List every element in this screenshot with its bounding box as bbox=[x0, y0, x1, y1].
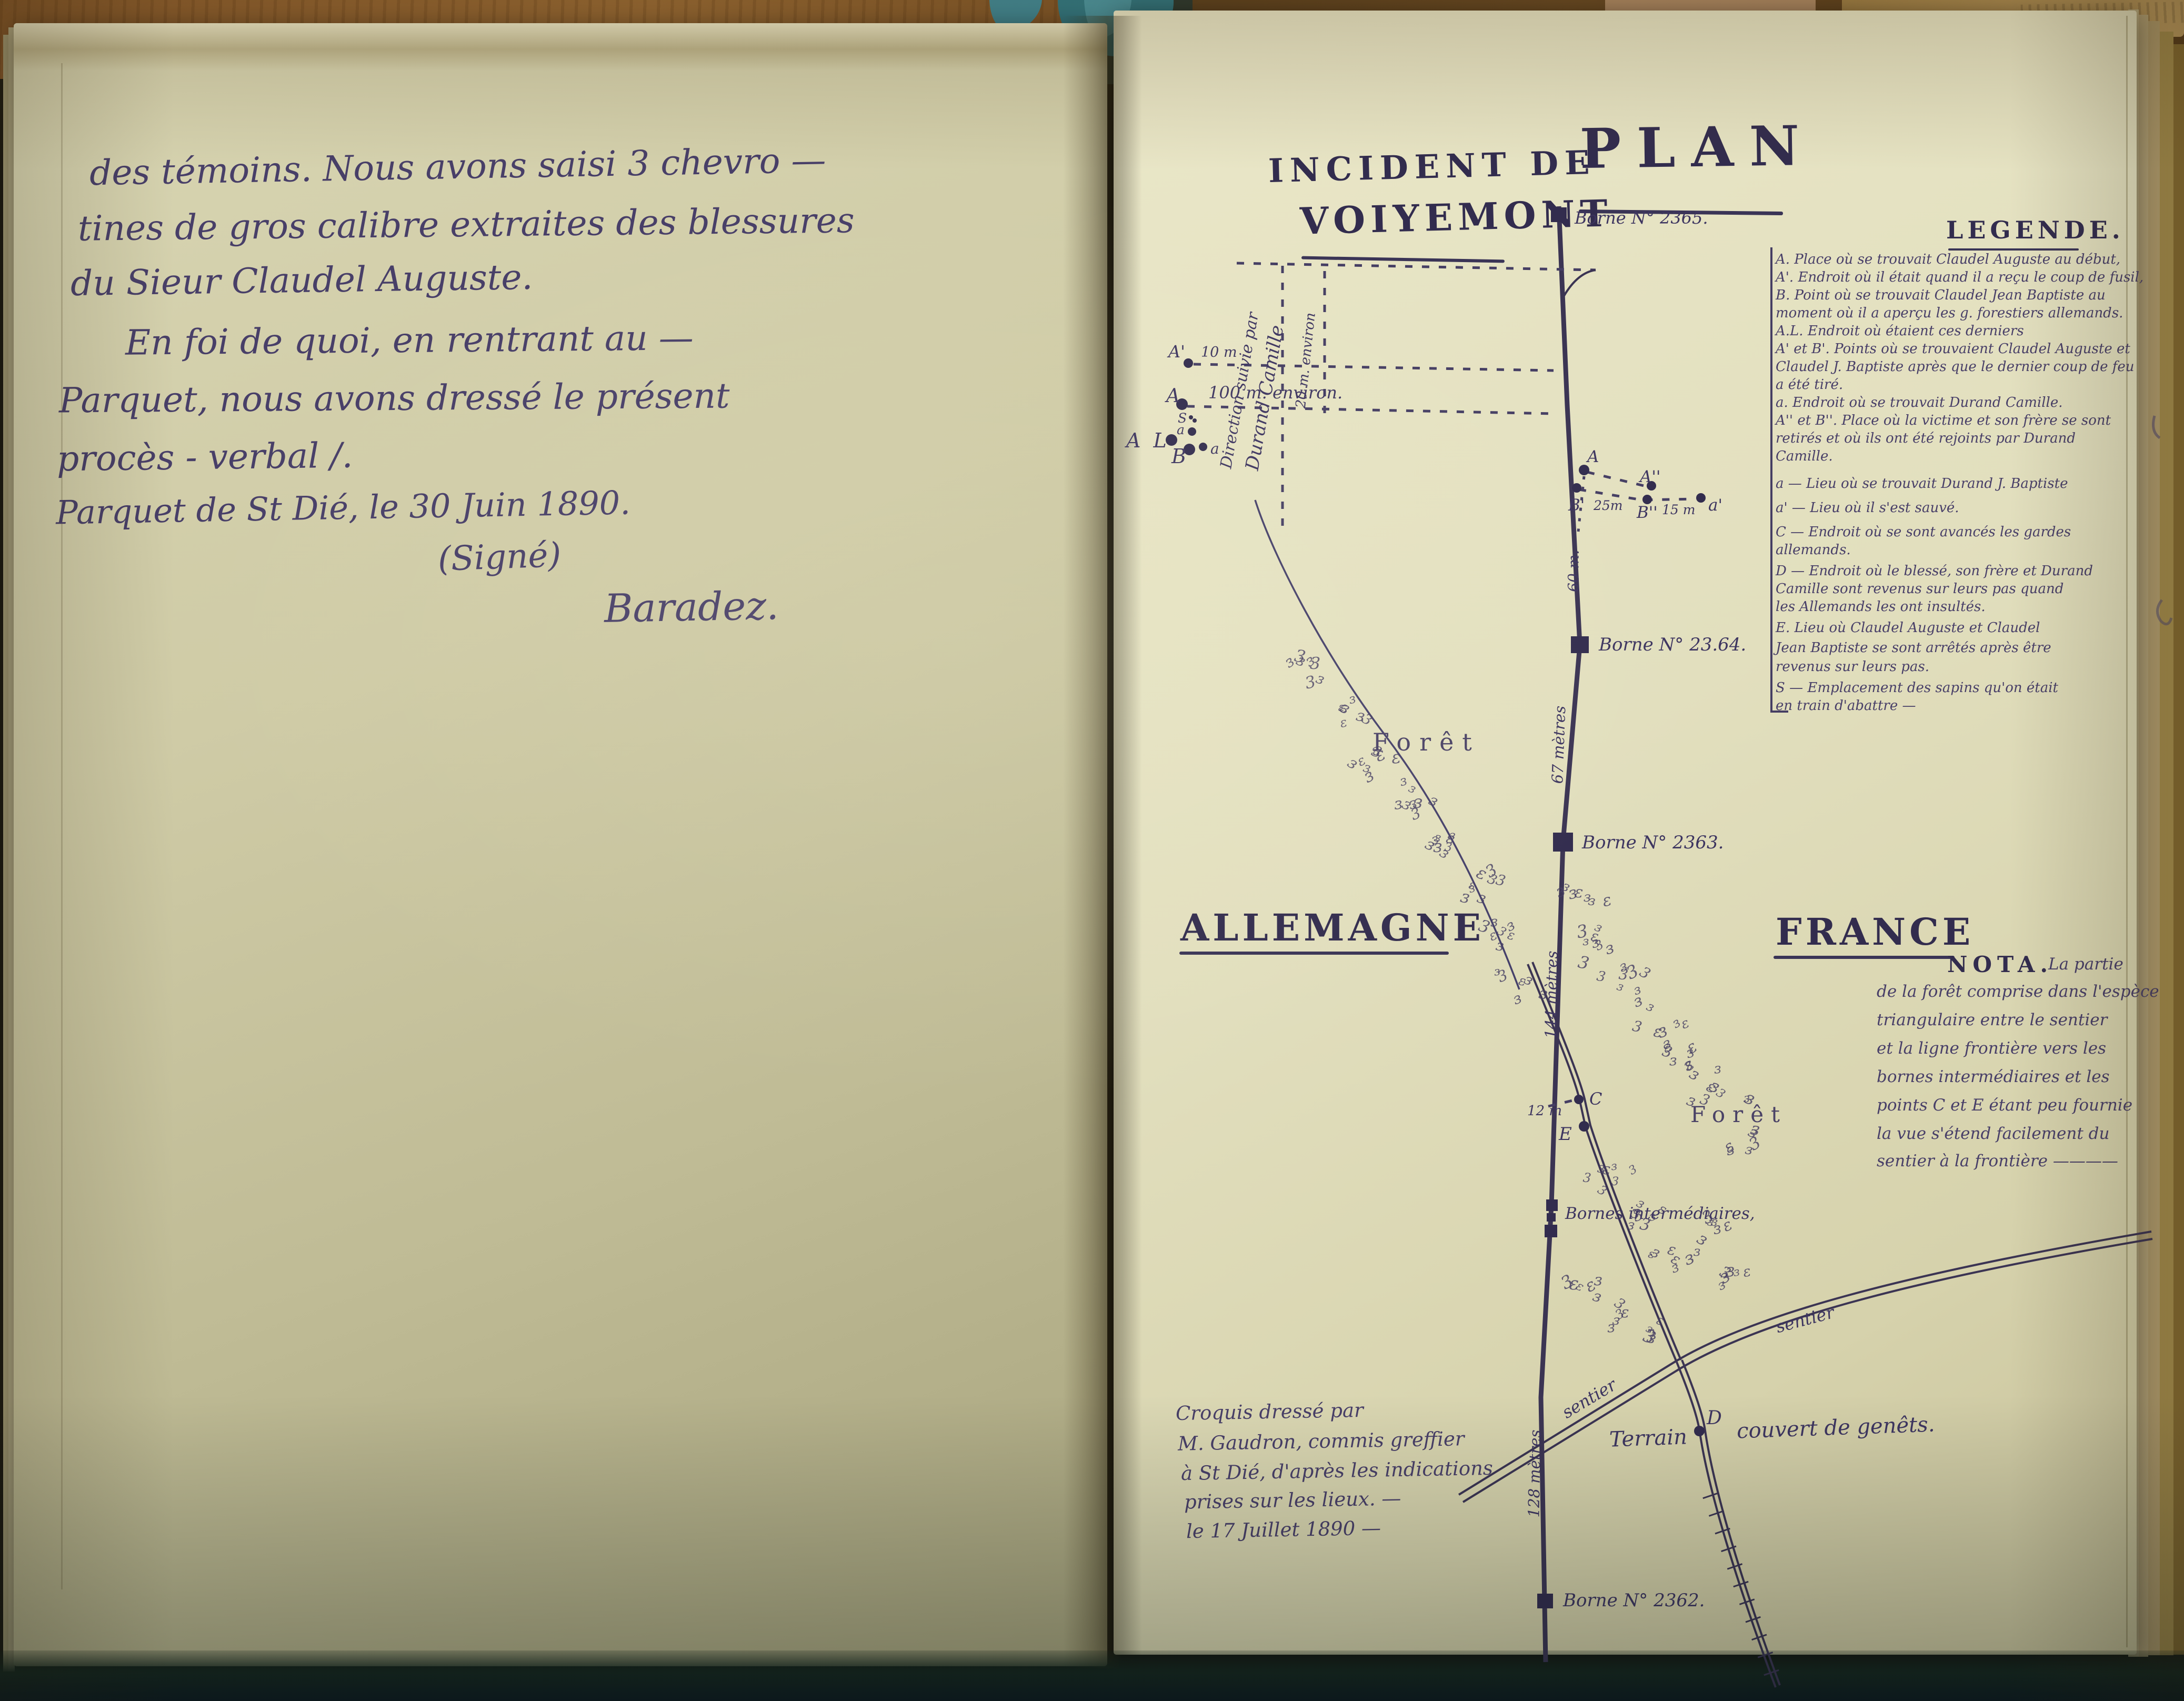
legend-line: A.L. Endroit où étaient ces derniers bbox=[1776, 324, 2024, 338]
point-label-a-dbl: A'' bbox=[1640, 468, 1660, 486]
legend-title: LEGENDE. bbox=[1946, 218, 2125, 242]
legend-line: A' et B'. Points où se trouvaient Claude… bbox=[1776, 342, 2130, 356]
france-underline bbox=[1774, 956, 1955, 959]
tree-scribble-icon: ɛ bbox=[1741, 1263, 1752, 1280]
archive-photo: 3ɜ3ɜɜ3ɜɛɛɜз3ɛɜ3ɛɜзɛɜɛɛɜɜз3ɜзɜɜɛɜɜ3зззɜ3з… bbox=[0, 0, 2184, 1701]
signature: Baradez. bbox=[604, 586, 779, 629]
nota-line: la vue s'étend facilement du bbox=[1877, 1125, 2110, 1143]
nota-line: triangulaire entre le sentier bbox=[1877, 1012, 2107, 1029]
caption-line: prises sur les lieux. — bbox=[1184, 1488, 1401, 1513]
legend-line: A'. Endroit où il était quand il a reçu … bbox=[1776, 271, 2143, 285]
legend-line: les Allemands les ont insultés. bbox=[1776, 600, 1986, 614]
country-label-allemagne: ALLEMAGNE bbox=[1180, 909, 1485, 946]
foret-label-1: Forêt bbox=[1372, 729, 1480, 755]
distance-60m: 60 m. bbox=[1566, 550, 1581, 592]
nota-line: bornes intermédiaires et les bbox=[1877, 1068, 2110, 1086]
terrain-label-part1: Terrain bbox=[1609, 1426, 1687, 1450]
legend-line: revenus sur leurs pas. bbox=[1776, 660, 1929, 674]
caption-line: M. Gaudron, commis greffier bbox=[1178, 1429, 1465, 1454]
distance-12m: 12 m bbox=[1527, 1104, 1562, 1118]
legend-line: moment où il a aperçu les g. forestiers … bbox=[1776, 306, 2123, 321]
point-label-a-line: A bbox=[1587, 448, 1599, 466]
tree-scribble-icon: з bbox=[1630, 991, 1645, 1012]
borne-label-2364: Borne N° 23.64. bbox=[1599, 636, 1746, 655]
point-label-a-escape: a' bbox=[1708, 497, 1722, 514]
legend-line: B. Point où se trouvait Claudel Jean Bap… bbox=[1776, 288, 2106, 303]
legend-line: A'' et B''. Place où la victime et son f… bbox=[1776, 414, 2111, 428]
manuscript-line: En foi de quoi, en rentrant au — bbox=[125, 319, 694, 361]
distance-128m: 128 mètres bbox=[1526, 1429, 1543, 1517]
tree-scribble-icon: ɜ bbox=[1615, 979, 1626, 994]
caption-line: le 17 Juillet 1890 — bbox=[1186, 1518, 1381, 1542]
borne-label-2365: Borne N° 2365. bbox=[1575, 209, 1708, 227]
legend-line: a été tiré. bbox=[1776, 378, 1843, 392]
point-label-c: C bbox=[1589, 1090, 1602, 1108]
legend-line: Camille sont revenus sur leurs pas quand bbox=[1776, 582, 2063, 596]
manuscript-line: procès - verbal /. bbox=[57, 437, 353, 477]
legend-line: Camille. bbox=[1776, 449, 1833, 464]
tree-scribble-icon: ɜ bbox=[1694, 1228, 1711, 1250]
tree-scribble-icon: з bbox=[1448, 827, 1457, 843]
legend-line: D — Endroit où le blessé, son frère et D… bbox=[1776, 564, 2093, 578]
tree-scribble-icon: ɜ bbox=[1393, 794, 1404, 814]
point-label-d: D bbox=[1707, 1408, 1722, 1428]
tree-scribble-icon: 3 bbox=[1595, 1182, 1609, 1199]
distance-67m: 67 mètres bbox=[1549, 705, 1568, 784]
legend-line: E. Lieu où Claudel Auguste et Claudel bbox=[1776, 621, 2040, 635]
nota-line: La partie bbox=[2048, 956, 2123, 973]
legend-line: en train d'abattre — bbox=[1776, 699, 1916, 713]
legend-line: C — Endroit où se sont avancés les garde… bbox=[1776, 525, 2071, 539]
subtitle-line2: VOIYEMONT bbox=[1299, 195, 1613, 240]
tree-scribble-icon: ɜ bbox=[1594, 1270, 1602, 1289]
point-label-b-prime: B' bbox=[1568, 497, 1585, 514]
distance-10m: 10 m bbox=[1201, 345, 1237, 360]
tree-scribble-icon: ɛ bbox=[1679, 1015, 1692, 1033]
legend-line: S — Emplacement des sapins qu'on était bbox=[1776, 681, 2058, 695]
manuscript-date-line: Parquet de St Dié, le 30 Juin 1890. bbox=[56, 485, 631, 529]
point-label-a-prime: A' bbox=[1168, 343, 1185, 361]
point-label-e: E bbox=[1559, 1125, 1572, 1144]
manuscript-signe: (Signé) bbox=[437, 538, 562, 577]
legend-line: Jean Baptiste se sont arrêtés après être bbox=[1776, 641, 2051, 655]
tree-scribble-icon: ɜ bbox=[1398, 773, 1409, 789]
legend-line: allemands. bbox=[1776, 543, 1851, 557]
legend-line: a — Lieu où se trouvait Durand J. Baptis… bbox=[1776, 477, 2068, 491]
point-label-b-dbl: B'' bbox=[1637, 504, 1658, 522]
tree-scribble-icon: ɛ bbox=[1574, 883, 1584, 902]
tree-scribble-icon: з bbox=[1602, 938, 1616, 958]
borne-label-2362: Borne N° 2362. bbox=[1563, 1592, 1705, 1610]
legend-line: a' — Lieu où il s'est sauvé. bbox=[1776, 501, 1959, 515]
tree-scribble-icon: 3 bbox=[1637, 963, 1654, 983]
distance-144m: 144 mètres bbox=[1542, 950, 1560, 1038]
country-label-france: FRANCE bbox=[1776, 914, 1974, 950]
legend-line: A. Place où se trouvait Claudel Auguste … bbox=[1776, 253, 2120, 267]
tree-scribble-icon: 3 bbox=[1576, 952, 1591, 974]
tree-scribble-icon: з bbox=[1744, 1141, 1754, 1158]
tree-scribble-icon: 3 bbox=[1582, 1170, 1592, 1186]
tree-scribble-icon: 3 bbox=[1575, 920, 1589, 942]
manuscript-line: Parquet, nous avons dressé le présent bbox=[59, 378, 730, 419]
nota-line: de la forêt comprise dans l'espèce bbox=[1877, 983, 2159, 1000]
borne-label-intermediaires: Bornes intermédiaires, bbox=[1565, 1205, 1755, 1223]
tree-scribble-icon: ɛ bbox=[1600, 890, 1614, 911]
tree-scribble-icon: 3 bbox=[1626, 1163, 1639, 1178]
distance-25m: 25m bbox=[1594, 499, 1623, 513]
point-label-a: A bbox=[1166, 386, 1180, 406]
point-label-b: B bbox=[1171, 446, 1186, 467]
nota-label: NOTA. bbox=[1947, 954, 2053, 976]
tree-scribble-icon: з bbox=[1426, 791, 1441, 811]
page-title: PLAN bbox=[1579, 118, 1816, 176]
tree-scribble-icon: ɜ bbox=[1724, 1140, 1736, 1159]
tree-scribble-icon: 3 bbox=[1611, 1175, 1619, 1188]
tree-scribble-icon: ɜ bbox=[1645, 998, 1657, 1015]
tree-scribble-icon: 3 bbox=[1630, 1017, 1643, 1036]
legend-line: retirés et où ils ont été rejoints par D… bbox=[1776, 432, 2076, 446]
point-label-al: A L bbox=[1126, 431, 1170, 452]
foret-label-2: Forêt bbox=[1690, 1103, 1787, 1126]
tree-scribble-icon: 3 bbox=[1596, 968, 1607, 985]
legend-line: a. Endroit où se trouvait Durand Camille… bbox=[1776, 396, 2062, 410]
nota-line: points C et E étant peu fournie bbox=[1877, 1097, 2132, 1114]
tree-scribble-icon: ɛ bbox=[1655, 1312, 1665, 1328]
nota-line: et la ligne frontière vers les bbox=[1877, 1040, 2106, 1057]
tree-scribble-icon: з bbox=[1610, 1160, 1618, 1174]
tree-scribble-icon: з bbox=[1510, 989, 1524, 1008]
caption-line: Croquis dressé par bbox=[1176, 1400, 1364, 1424]
legend-line: Claudel J. Baptiste après que le dernier… bbox=[1776, 360, 2135, 374]
tree-scribble-icon: ɜ bbox=[1607, 1318, 1615, 1336]
manuscript-line: tines de gros calibre extraites des bles… bbox=[78, 202, 855, 247]
borne-label-2363: Borne N° 2363. bbox=[1582, 834, 1724, 853]
subtitle-line1: INCIDENT DE bbox=[1268, 146, 1596, 187]
tree-scribble-icon: ɜ bbox=[1493, 965, 1501, 979]
distance-15m: 15 m bbox=[1662, 503, 1695, 517]
nota-line: sentier à la frontière ———— bbox=[1877, 1153, 2118, 1170]
point-label-a-small: a bbox=[1177, 423, 1185, 437]
legend-underline bbox=[1948, 248, 2079, 251]
tree-scribble-icon: ɜ bbox=[1360, 765, 1377, 786]
point-label-a-small2: a bbox=[1210, 441, 1219, 456]
allemagne-underline bbox=[1179, 952, 1449, 955]
manuscript-line: du Sieur Claudel Auguste. bbox=[71, 259, 533, 302]
